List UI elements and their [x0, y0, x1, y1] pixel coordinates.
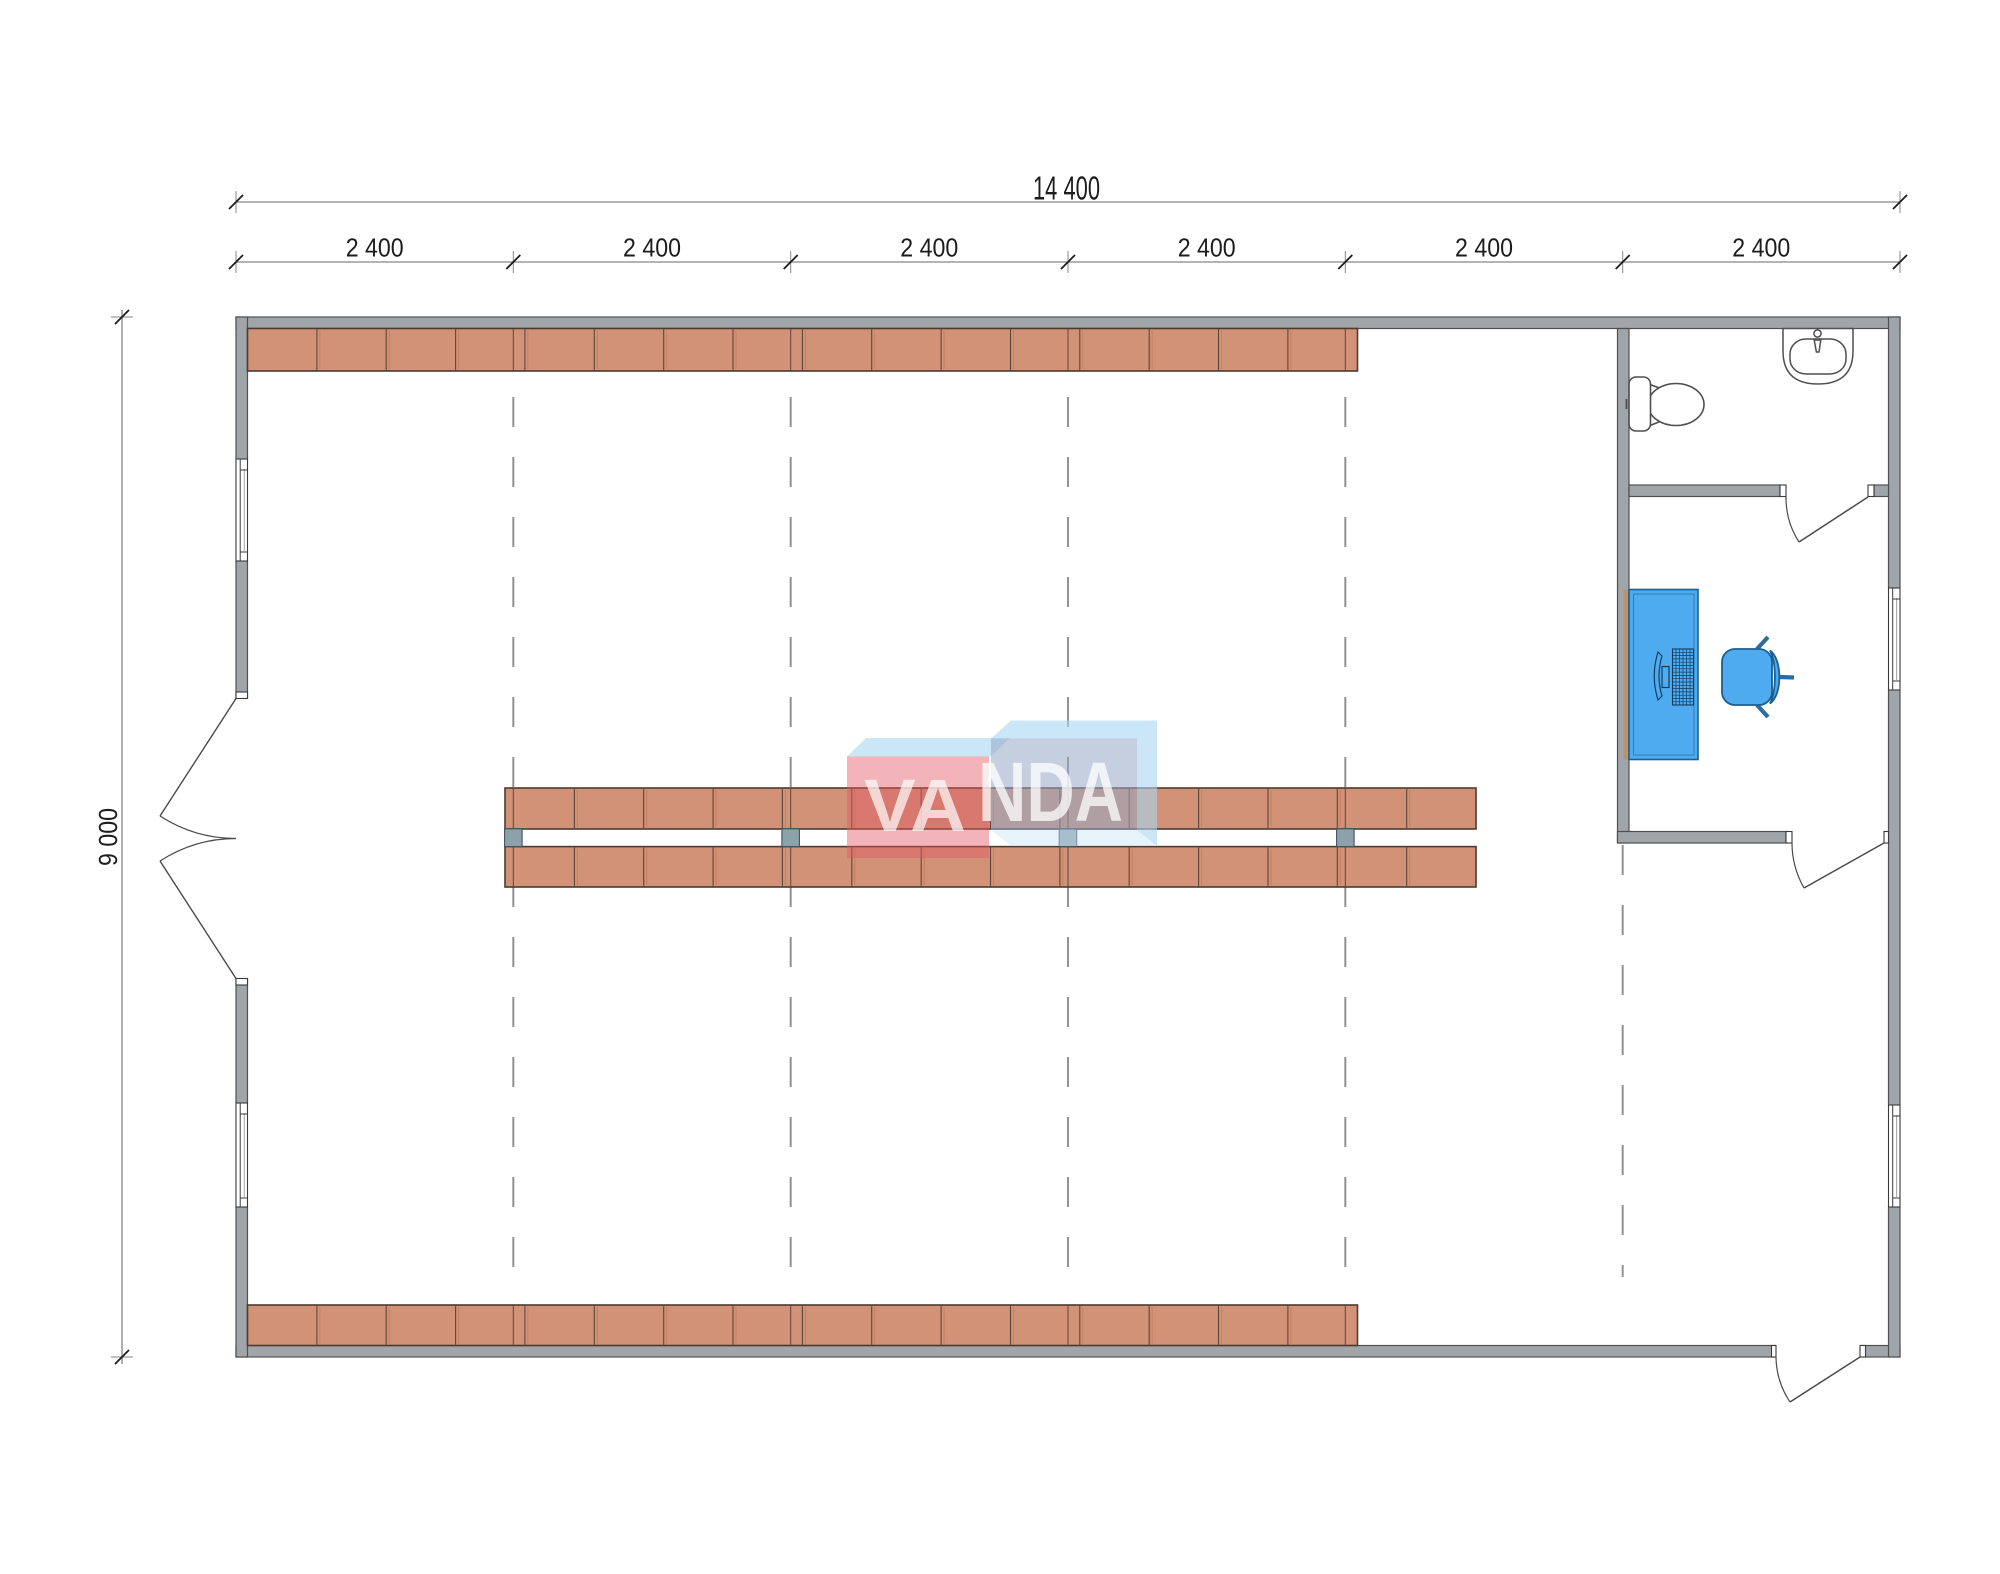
svg-text:2 400: 2 400: [1178, 235, 1236, 263]
svg-text:NDA: NDA: [978, 745, 1123, 839]
svg-text:14 400: 14 400: [1033, 170, 1100, 207]
svg-text:2 400: 2 400: [1455, 235, 1513, 263]
svg-text:2 400: 2 400: [346, 235, 404, 263]
svg-text:9 000: 9 000: [95, 808, 123, 866]
svg-text:2 400: 2 400: [900, 235, 958, 263]
svg-text:2 400: 2 400: [623, 235, 681, 263]
svg-text:VA: VA: [864, 764, 966, 847]
svg-text:2 400: 2 400: [1732, 235, 1790, 263]
